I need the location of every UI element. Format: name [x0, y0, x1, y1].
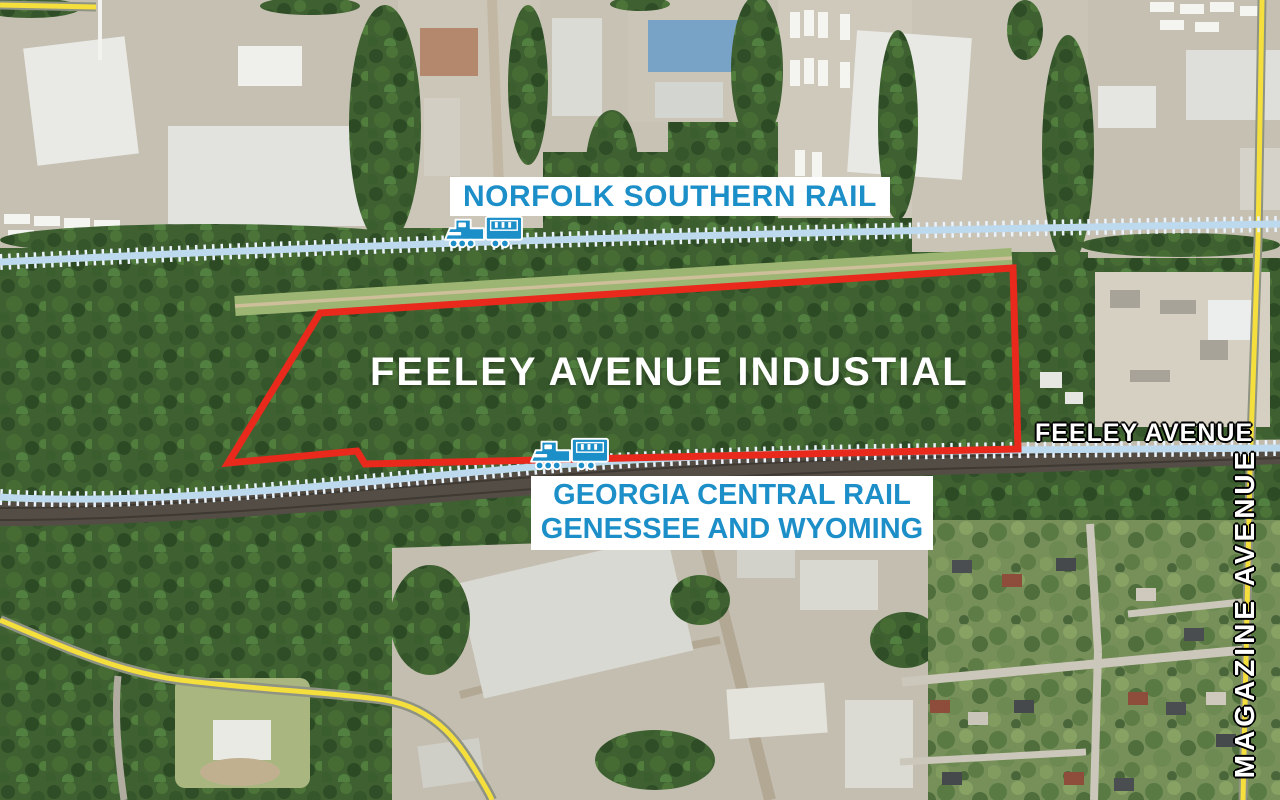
georgia-central-rail-line2: GENESSEE AND WYOMING — [531, 512, 933, 546]
site-title: FEELEY AVENUE INDUSTIAL — [370, 350, 969, 395]
road-marking — [98, 0, 102, 60]
train-icon-georgia — [528, 436, 612, 474]
train-icon — [442, 214, 526, 252]
feeley-avenue-label: FEELEY AVENUE — [1035, 419, 1253, 448]
georgia-central-rail-line1: GEORGIA CENTRAL RAIL — [531, 478, 933, 512]
georgia-central-rail-label: GEORGIA CENTRAL RAIL GENESSEE AND WYOMIN… — [531, 476, 933, 550]
road-top-left — [0, 5, 96, 7]
aerial-map: NORFOLK SOUTHERN RAIL FEELEY AVENUE INDU… — [0, 0, 1280, 800]
train-icon — [528, 436, 612, 474]
residential-area-east — [900, 520, 1280, 800]
norfolk-southern-rail-label: NORFOLK SOUTHERN RAIL — [450, 177, 890, 216]
magazine-avenue-label: MAGAZINE AVENUE — [1229, 428, 1267, 798]
aerial-basemap — [0, 0, 1280, 800]
train-icon-norfolk — [442, 214, 526, 252]
